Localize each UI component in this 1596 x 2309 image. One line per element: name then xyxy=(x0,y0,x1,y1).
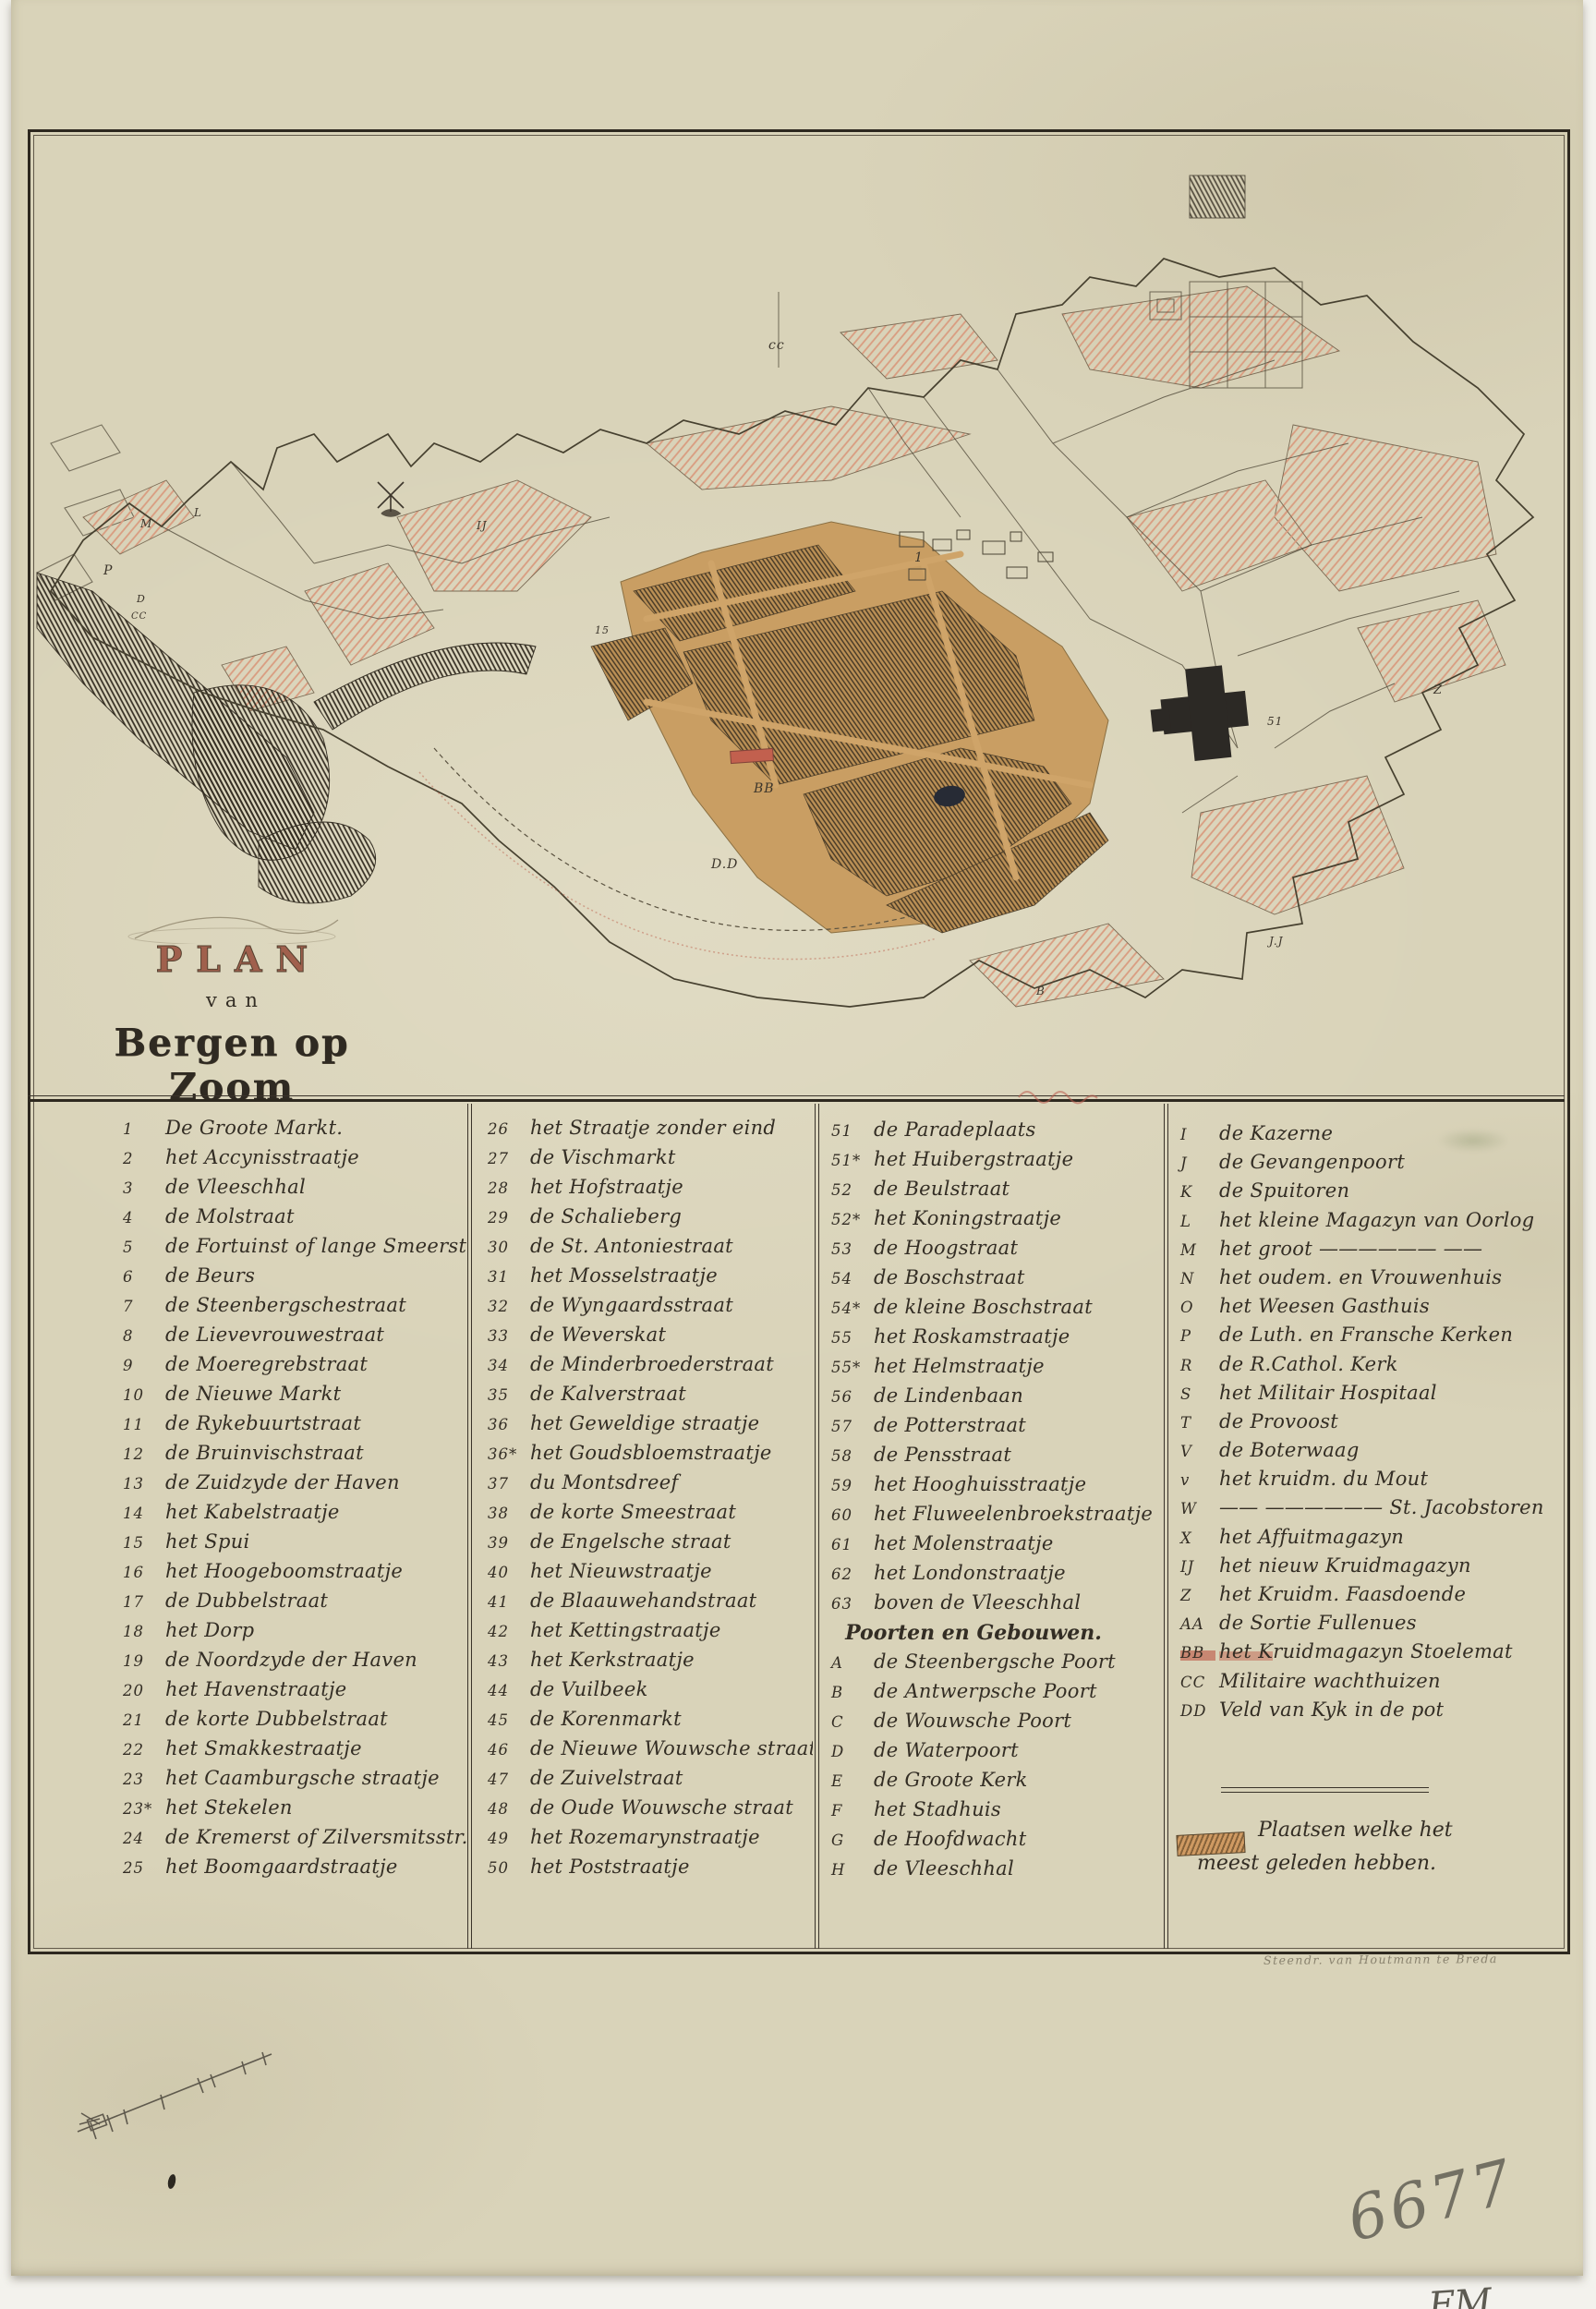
legend-entry: 12de Bruinvischstraat xyxy=(123,1442,467,1471)
legend-entry: 56de Lindenbaan xyxy=(831,1384,1162,1414)
legend-entry-number: 50 xyxy=(488,1859,530,1877)
legend-entry-name: de Gevangenpoort xyxy=(1219,1151,1405,1173)
legend-entry-number: 52* xyxy=(831,1211,874,1228)
legend-entry-name: het Poststraatje xyxy=(530,1856,690,1878)
legend-entry-name: Veld van Kyk in de pot xyxy=(1219,1699,1444,1721)
legend-entry-number: 31 xyxy=(488,1268,530,1286)
legend-entry-name: de Vuilbeek xyxy=(530,1678,648,1700)
legend-entry: 26het Straatje zonder eind xyxy=(488,1117,813,1146)
legend-entry: 10de Nieuwe Markt xyxy=(123,1383,467,1412)
legend-entry: 55*het Helmstraatje xyxy=(831,1355,1162,1384)
legend-entry-name: de Zuidzyde der Haven xyxy=(165,1471,400,1493)
legend-entry: 42het Kettingstraatje xyxy=(488,1619,813,1649)
legend-entry-name: de Kalverstraat xyxy=(530,1383,686,1405)
legend-entry-number: 1 xyxy=(123,1120,165,1138)
legend-entry-name: de St. Antoniestraat xyxy=(530,1235,733,1257)
legend-entry-name: —— —————— St. Jacobstoren xyxy=(1219,1496,1544,1518)
legend-entry-number: BB xyxy=(1180,1644,1219,1662)
legend-entry: 52*het Koningstraatje xyxy=(831,1207,1162,1237)
title-flourish xyxy=(116,913,347,944)
legend-entry-number: 46 xyxy=(488,1741,530,1759)
legend-entry-name: de Vleeschhal xyxy=(165,1176,306,1198)
legend-entry: 9de Moeregrebstraat xyxy=(123,1353,467,1383)
legend-entry: 11de Rykebuurtstraat xyxy=(123,1412,467,1442)
legend-entry-number: 60 xyxy=(831,1506,874,1524)
legend-note-divider xyxy=(1221,1787,1429,1793)
legend-entry-number: 47 xyxy=(488,1771,530,1788)
legend-entry-name: het Goudsbloemstraatje xyxy=(530,1442,772,1464)
legend-entry-number: 3 xyxy=(123,1179,165,1197)
legend-entry-number: 7 xyxy=(123,1298,165,1315)
legend-entry-number: 16 xyxy=(123,1564,165,1581)
legend-entry-name: het Rozemarynstraatje xyxy=(530,1826,760,1848)
legend-entry-name: de Boterwaag xyxy=(1219,1439,1360,1461)
legend-entry-name: de Groote Kerk xyxy=(874,1769,1028,1791)
legend-entry: 52de Beulstraat xyxy=(831,1178,1162,1207)
legend-entry-number: R xyxy=(1180,1357,1219,1374)
legend-entry-number: 21 xyxy=(123,1711,165,1729)
legend-entry: W—— —————— St. Jacobstoren xyxy=(1180,1496,1565,1525)
legend-entry-name: de Pensstraat xyxy=(874,1444,1011,1466)
legend-entry: 35de Kalverstraat xyxy=(488,1383,813,1412)
legend-entry: 7de Steenbergschestraat xyxy=(123,1294,467,1324)
legend-entry-name: het Molenstraatje xyxy=(874,1532,1054,1554)
legend-entry-name: de Lindenbaan xyxy=(874,1384,1023,1407)
legend-entry: Nhet oudem. en Vrouwenhuis xyxy=(1180,1266,1565,1295)
legend-entry: 29de Schalieberg xyxy=(488,1205,813,1235)
legend-entry: 22het Smakkestraatje xyxy=(123,1737,467,1767)
pencil-scribble xyxy=(52,2037,301,2167)
legend-entry: Hde Vleeschhal xyxy=(831,1857,1162,1887)
legend-entry: 55het Roskamstraatje xyxy=(831,1325,1162,1355)
legend-entry: Shet Militair Hospitaal xyxy=(1180,1382,1565,1410)
legend-entry: 47de Zuivelstraat xyxy=(488,1767,813,1796)
legend-entry-number: 51 xyxy=(831,1122,874,1140)
legend-entry-name: de Waterpoort xyxy=(874,1739,1019,1761)
legend-entry: 48de Oude Wouwsche straat xyxy=(488,1796,813,1826)
red-pencil-squiggle xyxy=(1011,1079,1131,1106)
legend-entry-name: het oudem. en Vrouwenhuis xyxy=(1219,1266,1502,1288)
legend-entry-name: de Vischmarkt xyxy=(530,1146,676,1168)
legend-entry-name: de Zuivelstraat xyxy=(530,1767,683,1789)
legend-entry-name: het Havenstraatje xyxy=(165,1678,347,1700)
legend-entry-name: het Londonstraatje xyxy=(874,1562,1066,1584)
legend-entry-number: 13 xyxy=(123,1475,165,1493)
legend-entry-number: W xyxy=(1180,1500,1219,1517)
legend-entry: 53de Hoogstraat xyxy=(831,1237,1162,1266)
legend-entry-number: D xyxy=(831,1743,874,1760)
legend-entry-name: de Steenbergschestraat xyxy=(165,1294,406,1316)
legend-entry-number: M xyxy=(1180,1241,1219,1259)
legend-entry-name: Militaire wachthuizen xyxy=(1219,1670,1441,1692)
legend-entry-name: het Mosselstraatje xyxy=(530,1264,718,1287)
legend-entry: 32de Wyngaardsstraat xyxy=(488,1294,813,1324)
legend-entry: 50het Poststraatje xyxy=(488,1856,813,1885)
legend-entry-name: de korte Smeestraat xyxy=(530,1501,736,1523)
legend-entry-name: het Hoogeboomstraatje xyxy=(165,1560,403,1582)
legend-entry: 57de Potterstraat xyxy=(831,1414,1162,1444)
legend-entry: DDVeld van Kyk in de pot xyxy=(1180,1699,1565,1727)
legend-entry: 4de Molstraat xyxy=(123,1205,467,1235)
legend-entry-name: het Hooghuisstraatje xyxy=(874,1473,1086,1495)
printer-imprint: Steendr. van Houtmann te Breda xyxy=(1263,1952,1498,1967)
legend-entry-number: 54 xyxy=(831,1270,874,1287)
legend-entry: vhet kruidm. du Mout xyxy=(1180,1468,1565,1496)
legend-entry-number: 22 xyxy=(123,1741,165,1759)
legend-entry-name: de Engelsche straat xyxy=(530,1530,731,1553)
legend-entry-name: de Weverskat xyxy=(530,1324,666,1346)
legend-entry-name: de korte Dubbelstraat xyxy=(165,1708,388,1730)
legend-entry-number: 52 xyxy=(831,1181,874,1199)
legend-entry-number: 34 xyxy=(488,1357,530,1374)
legend-entry-name: de Moeregrebstraat xyxy=(165,1353,368,1375)
legend-entry-number: 12 xyxy=(123,1445,165,1463)
legend-entry-number: T xyxy=(1180,1414,1219,1432)
legend-entry: 34de Minderbroederstraat xyxy=(488,1353,813,1383)
legend-entry-number: 6 xyxy=(123,1268,165,1286)
legend-entry-number: 28 xyxy=(488,1179,530,1197)
legend-entry: 1De Groote Markt. xyxy=(123,1117,467,1146)
groote-kerk-black xyxy=(1146,663,1251,765)
legend-entry-name: het kleine Magazyn van Oorlog xyxy=(1219,1209,1534,1231)
legend-entry: 14het Kabelstraatje xyxy=(123,1501,467,1530)
legend-entry-number: 49 xyxy=(488,1830,530,1847)
legend-entry: 6de Beurs xyxy=(123,1264,467,1294)
legend-entry: Dde Waterpoort xyxy=(831,1739,1162,1769)
legend-entry-name: de Spuitoren xyxy=(1219,1179,1349,1202)
column-separator-2 xyxy=(815,1104,819,1949)
legend-entry-number: 54* xyxy=(831,1300,874,1317)
legend-entry-number: L xyxy=(1180,1213,1219,1230)
legend-entry-name: de Noordzyde der Haven xyxy=(165,1649,417,1671)
mat-label: FM 6677 xyxy=(1427,2274,1596,2309)
legend-entry-name: de Potterstraat xyxy=(874,1414,1026,1436)
legend-entry: BBhet Kruidmagazyn Stoelemat xyxy=(1180,1640,1565,1669)
legend-entry-number: X xyxy=(1180,1529,1219,1547)
legend-entry: 62het Londonstraatje xyxy=(831,1562,1162,1591)
legend-entry-name: het Kabelstraatje xyxy=(165,1501,340,1523)
legend-entry-name: het Huibergstraatje xyxy=(874,1148,1073,1170)
green-smudge xyxy=(1437,1129,1509,1153)
legend-column-2: 26het Straatje zonder eind27de Vischmark… xyxy=(473,1102,813,1949)
legend-entry-number: 62 xyxy=(831,1566,874,1583)
legend-entry-number: O xyxy=(1180,1299,1219,1316)
legend-entry-number: 51* xyxy=(831,1152,874,1169)
legend-entry: 27de Vischmarkt xyxy=(488,1146,813,1176)
legend-entry: AAde Sortie Fullenues xyxy=(1180,1612,1565,1640)
legend-entry: Tde Provoost xyxy=(1180,1410,1565,1439)
legend-entry-name: het groot —————— —— xyxy=(1219,1238,1482,1260)
legend-entry: Bde Antwerpsche Poort xyxy=(831,1680,1162,1710)
legend-entry: 54*de kleine Boschstraat xyxy=(831,1296,1162,1325)
legend-entry-number: 19 xyxy=(123,1652,165,1670)
legend-entry-name: de Paradeplaats xyxy=(874,1118,1036,1141)
legend-entry-name: het Hofstraatje xyxy=(530,1176,683,1198)
legend-entry-name: de R.Cathol. Kerk xyxy=(1219,1353,1398,1375)
legend-entry-number: 44 xyxy=(488,1682,530,1699)
legend-entry: 23*het Stekelen xyxy=(123,1796,467,1826)
legend-entry: Vde Boterwaag xyxy=(1180,1439,1565,1468)
legend-entry: 63boven de Vleeschhal xyxy=(831,1591,1162,1621)
legend-entry-name: de Fortuinst of lange Smeerst xyxy=(165,1235,466,1257)
legend-entry-name: de Beulstraat xyxy=(874,1178,1010,1200)
legend-heading-label: Poorten en Gebouwen. xyxy=(845,1621,1102,1645)
legend-entry: 25het Boomgaardstraatje xyxy=(123,1856,467,1885)
legend-entry-name: het Militair Hospitaal xyxy=(1219,1382,1437,1404)
legend-entry: 36het Geweldige straatje xyxy=(488,1412,813,1442)
legend-entry-number: 17 xyxy=(123,1593,165,1611)
legend-entry-number: CC xyxy=(1180,1674,1219,1691)
legend-entry: 33de Weverskat xyxy=(488,1324,813,1353)
legend-entry-name: het kruidm. du Mout xyxy=(1219,1468,1428,1490)
legend-entry-name: de Hoogstraat xyxy=(874,1237,1018,1259)
legend-column-3: 51de Paradeplaats51*het Huibergstraatje5… xyxy=(820,1102,1162,1949)
legend-entry-number: 24 xyxy=(123,1830,165,1847)
legend-entry: Jde Gevangenpoort xyxy=(1180,1151,1565,1179)
legend-entry-name: het Affuitmagazyn xyxy=(1219,1526,1404,1548)
legend-entry: 43het Kerkstraatje xyxy=(488,1649,813,1678)
legend-entry-number: 55 xyxy=(831,1329,874,1347)
legend-entry-name: boven de Vleeschhal xyxy=(874,1591,1081,1614)
legend-entry-name: de Minderbroederstraat xyxy=(530,1353,774,1375)
legend-entry-number: 55* xyxy=(831,1359,874,1376)
legend-entry-number: IJ xyxy=(1180,1558,1219,1576)
legend-entry: 60het Fluweelenbroekstraatje xyxy=(831,1503,1162,1532)
legend-entry: 46de Nieuwe Wouwsche straat xyxy=(488,1737,813,1767)
legend-entry: 18het Dorp xyxy=(123,1619,467,1649)
legend-entry: CCMilitaire wachthuizen xyxy=(1180,1670,1565,1699)
legend-entry-name: het Geweldige straatje xyxy=(530,1412,759,1434)
legend-entry-number: 18 xyxy=(123,1623,165,1640)
legend-entry-number: 37 xyxy=(488,1475,530,1493)
legend-entry-number: 43 xyxy=(488,1652,530,1670)
legend-entry-number: 14 xyxy=(123,1505,165,1522)
legend-entry-number: 42 xyxy=(488,1623,530,1640)
legend-entry-name: de Dubbelstraat xyxy=(165,1590,328,1612)
legend-entry: 21de korte Dubbelstraat xyxy=(123,1708,467,1737)
legend-entry-name: de Hoofdwacht xyxy=(874,1828,1026,1850)
legend-entry-name: de Provoost xyxy=(1219,1410,1338,1433)
legend-entry: Mhet groot —————— —— xyxy=(1180,1238,1565,1266)
legend-entry-number: 63 xyxy=(831,1595,874,1613)
legend-entry: Ade Steenbergsche Poort xyxy=(831,1650,1162,1680)
legend-entry: 2het Accynisstraatje xyxy=(123,1146,467,1176)
column-separator-3 xyxy=(1164,1104,1168,1949)
legend-entry-name: de Wouwsche Poort xyxy=(874,1710,1071,1732)
legend-entry-number: 15 xyxy=(123,1534,165,1552)
legend-entry: 17de Dubbelstraat xyxy=(123,1590,467,1619)
legend-entry: IJhet nieuw Kruidmagazyn xyxy=(1180,1554,1565,1583)
legend-entry: 49het Rozemarynstraatje xyxy=(488,1826,813,1856)
legend-entry-name: het nieuw Kruidmagazyn xyxy=(1219,1554,1471,1577)
legend-entry-number: J xyxy=(1180,1154,1219,1172)
legend-entry-number: 30 xyxy=(488,1239,530,1256)
legend-entry-name: De Groote Markt. xyxy=(165,1117,343,1139)
legend-entry-number: V xyxy=(1180,1443,1219,1460)
legend-entry-name: de Beurs xyxy=(165,1264,255,1287)
legend-entry-name: het Straatje zonder eind xyxy=(530,1117,776,1139)
legend-entry-name: de kleine Boschstraat xyxy=(874,1296,1093,1318)
damage-note-line1: Plaatsen welke het xyxy=(1258,1819,1453,1842)
legend-entry-number: 10 xyxy=(123,1386,165,1404)
legend-entry-number: S xyxy=(1180,1385,1219,1403)
legend-entry-number: C xyxy=(831,1713,874,1731)
legend-entry: 3de Vleeschhal xyxy=(123,1176,467,1205)
legend-entry: 19de Noordzyde der Haven xyxy=(123,1649,467,1678)
legend-entry-name: het Kerkstraatje xyxy=(530,1649,695,1671)
windmill-icon xyxy=(378,482,404,516)
legend-entry-name: de Bruinvischstraat xyxy=(165,1442,364,1464)
title-block: PLAN van Bergen op Zoom xyxy=(52,913,412,1109)
legend-entry-number: A xyxy=(831,1654,874,1672)
legend-entry-name: de Nieuwe Markt xyxy=(165,1383,341,1405)
legend-entry-number: 9 xyxy=(123,1357,165,1374)
legend-entry-name: het Kruidm. Faasdoende xyxy=(1219,1583,1466,1605)
legend-entry-number: 39 xyxy=(488,1534,530,1552)
legend-entry: 39de Engelsche straat xyxy=(488,1530,813,1560)
legend-entry: Ede Groote Kerk xyxy=(831,1769,1162,1798)
legend-entry-name: de Luth. en Fransche Kerken xyxy=(1219,1324,1513,1346)
legend-entry-name: het Kettingstraatje xyxy=(530,1619,721,1641)
legend-entry: 45de Korenmarkt xyxy=(488,1708,813,1737)
legend-entry: Zhet Kruidm. Faasdoende xyxy=(1180,1583,1565,1612)
legend-entry-name: de Schalieberg xyxy=(530,1205,682,1227)
legend-entry-number: 20 xyxy=(123,1682,165,1699)
legend-entry: Lhet kleine Magazyn van Oorlog xyxy=(1180,1209,1565,1238)
legend-entry-number: K xyxy=(1180,1183,1219,1201)
legend-entry-number: N xyxy=(1180,1270,1219,1287)
legend-entry-number: B xyxy=(831,1684,874,1701)
legend-entry-number: 8 xyxy=(123,1327,165,1345)
legend-entry: 51*het Huibergstraatje xyxy=(831,1148,1162,1178)
legend-entry-name: du Montsdreef xyxy=(530,1471,679,1493)
legend-entry-number: 23 xyxy=(123,1771,165,1788)
legend-entry: 59het Hooghuisstraatje xyxy=(831,1473,1162,1503)
legend-entry: 16het Hoogeboomstraatje xyxy=(123,1560,467,1590)
legend-entry-name: het Roskamstraatje xyxy=(874,1325,1070,1348)
legend-entry-number: 36* xyxy=(488,1445,530,1463)
legend-entry-number: 56 xyxy=(831,1388,874,1406)
legend-entry-number: 4 xyxy=(123,1209,165,1227)
legend-entry: 61het Molenstraatje xyxy=(831,1532,1162,1562)
legend-entry-number: E xyxy=(831,1772,874,1790)
legend-entry-number: 25 xyxy=(123,1859,165,1877)
legend-entry: 38de korte Smeestraat xyxy=(488,1501,813,1530)
legend-entry-name: de Nieuwe Wouwsche straat xyxy=(530,1737,813,1759)
legend-entry: 58de Pensstraat xyxy=(831,1444,1162,1473)
legend-entry-name: het Stekelen xyxy=(165,1796,293,1819)
legend-entry-name: het Boomgaardstraatje xyxy=(165,1856,398,1878)
legend-entry-name: het Accynisstraatje xyxy=(165,1146,359,1168)
legend-entry-name: de Lievevrouwestraat xyxy=(165,1324,384,1346)
legend-entry: 13de Zuidzyde der Haven xyxy=(123,1471,467,1501)
legend-entry-number: 59 xyxy=(831,1477,874,1494)
legend-entry-name: de Korenmarkt xyxy=(530,1708,682,1730)
legend-entry-number: 38 xyxy=(488,1505,530,1522)
legend-column-4: Plaatsen welke het meest geleden hebben.… xyxy=(1169,1102,1565,1949)
title-van: van xyxy=(52,989,412,1011)
legend-entry-name: het Stadhuis xyxy=(874,1798,1001,1820)
legend-entry: 24de Kremerst of Zilversmitsstr. xyxy=(123,1826,467,1856)
legend-entry: Kde Spuitoren xyxy=(1180,1179,1565,1208)
legend-entry-name: het Helmstraatje xyxy=(874,1355,1045,1377)
legend-entry-number: 36 xyxy=(488,1416,530,1433)
legend-entry: 20het Havenstraatje xyxy=(123,1678,467,1708)
legend-entry-name: de Oude Wouwsche straat xyxy=(530,1796,793,1819)
legend-entry-name: de Blaauwehandstraat xyxy=(530,1590,756,1612)
legend-entry: Xhet Affuitmagazyn xyxy=(1180,1526,1565,1554)
legend-entry-number: 27 xyxy=(488,1150,530,1167)
legend-entry: 36*het Goudsbloemstraatje xyxy=(488,1442,813,1471)
legend-entry: 51de Paradeplaats xyxy=(831,1118,1162,1148)
legend-entry-name: het Nieuwstraatje xyxy=(530,1560,712,1582)
legend-entry-name: het Weesen Gasthuis xyxy=(1219,1295,1430,1317)
legend-entry-number: 32 xyxy=(488,1298,530,1315)
legend-entry: 44de Vuilbeek xyxy=(488,1678,813,1708)
legend-entry-name: het Kruidmagazyn Stoelemat xyxy=(1219,1640,1513,1662)
legend-entry-name: het Koningstraatje xyxy=(874,1207,1061,1229)
legend-entry: 28het Hofstraatje xyxy=(488,1176,813,1205)
legend-entry-number: 11 xyxy=(123,1416,165,1433)
legend-entry-number: 40 xyxy=(488,1564,530,1581)
legend-entry-number: 57 xyxy=(831,1418,874,1435)
legend-entry-name: de Boschstraat xyxy=(874,1266,1025,1288)
legend-entry-name: de Rykebuurtstraat xyxy=(165,1412,361,1434)
legend-entry-name: de Sortie Fullenues xyxy=(1219,1612,1417,1634)
legend-entry: Gde Hoofdwacht xyxy=(831,1828,1162,1857)
legend-entry: 30de St. Antoniestraat xyxy=(488,1235,813,1264)
damage-note-line2: meest geleden hebben. xyxy=(1197,1852,1436,1875)
legend-entry-number: F xyxy=(831,1802,874,1819)
legend-entry-name: de Steenbergsche Poort xyxy=(874,1650,1116,1673)
legend-entry: 41de Blaauwehandstraat xyxy=(488,1590,813,1619)
title-plan: PLAN xyxy=(52,938,412,980)
legend-entry: 15het Spui xyxy=(123,1530,467,1560)
legend-entry-name: het Smakkestraatje xyxy=(165,1737,362,1759)
legend-entry: Cde Wouwsche Poort xyxy=(831,1710,1162,1739)
legend-entry-number: 23* xyxy=(123,1800,165,1818)
legend-entry-number: 48 xyxy=(488,1800,530,1818)
legend-entry-number: P xyxy=(1180,1327,1219,1345)
legend-entry: 37du Montsdreef xyxy=(488,1471,813,1501)
legend-entry-number: 26 xyxy=(488,1120,530,1138)
legend-entry-name: de Vleeschhal xyxy=(874,1857,1014,1880)
legend-entry-number: 45 xyxy=(488,1711,530,1729)
legend-entry-name: het Caamburgsche straatje xyxy=(165,1767,440,1789)
legend-entry-number: AA xyxy=(1180,1615,1219,1633)
legend-entry-number: H xyxy=(831,1861,874,1879)
legend-entry-number: 5 xyxy=(123,1239,165,1256)
legend-entry-name: de Kazerne xyxy=(1219,1122,1333,1144)
damaged-zone-tan xyxy=(591,522,1108,933)
legend-entry: 5de Fortuinst of lange Smeerst xyxy=(123,1235,467,1264)
legend-entry: 54de Boschstraat xyxy=(831,1266,1162,1296)
legend-entry-name: het Spui xyxy=(165,1530,250,1553)
legend-column-1: 1De Groote Markt.2het Accynisstraatje3de… xyxy=(30,1102,467,1949)
red-magazine-marker xyxy=(731,748,774,763)
legend-entry-number: I xyxy=(1180,1126,1219,1143)
legend-entry-number: 29 xyxy=(488,1209,530,1227)
legend-top-rule-thin xyxy=(28,1095,1565,1096)
column-separator-1 xyxy=(467,1104,472,1949)
legend-entry-number: G xyxy=(831,1831,874,1849)
legend-entry-number: Z xyxy=(1180,1587,1219,1604)
legend-entry: 8de Lievevrouwestraat xyxy=(123,1324,467,1353)
scanned-map-sheet: ccIJLMPDCC115BBD.D51ZJ.JB PLAN van Berge… xyxy=(0,0,1596,2309)
legend-entry-name: de Molstraat xyxy=(165,1205,295,1227)
legend-entry-number: 58 xyxy=(831,1447,874,1465)
legend-entry-name: het Dorp xyxy=(165,1619,254,1641)
